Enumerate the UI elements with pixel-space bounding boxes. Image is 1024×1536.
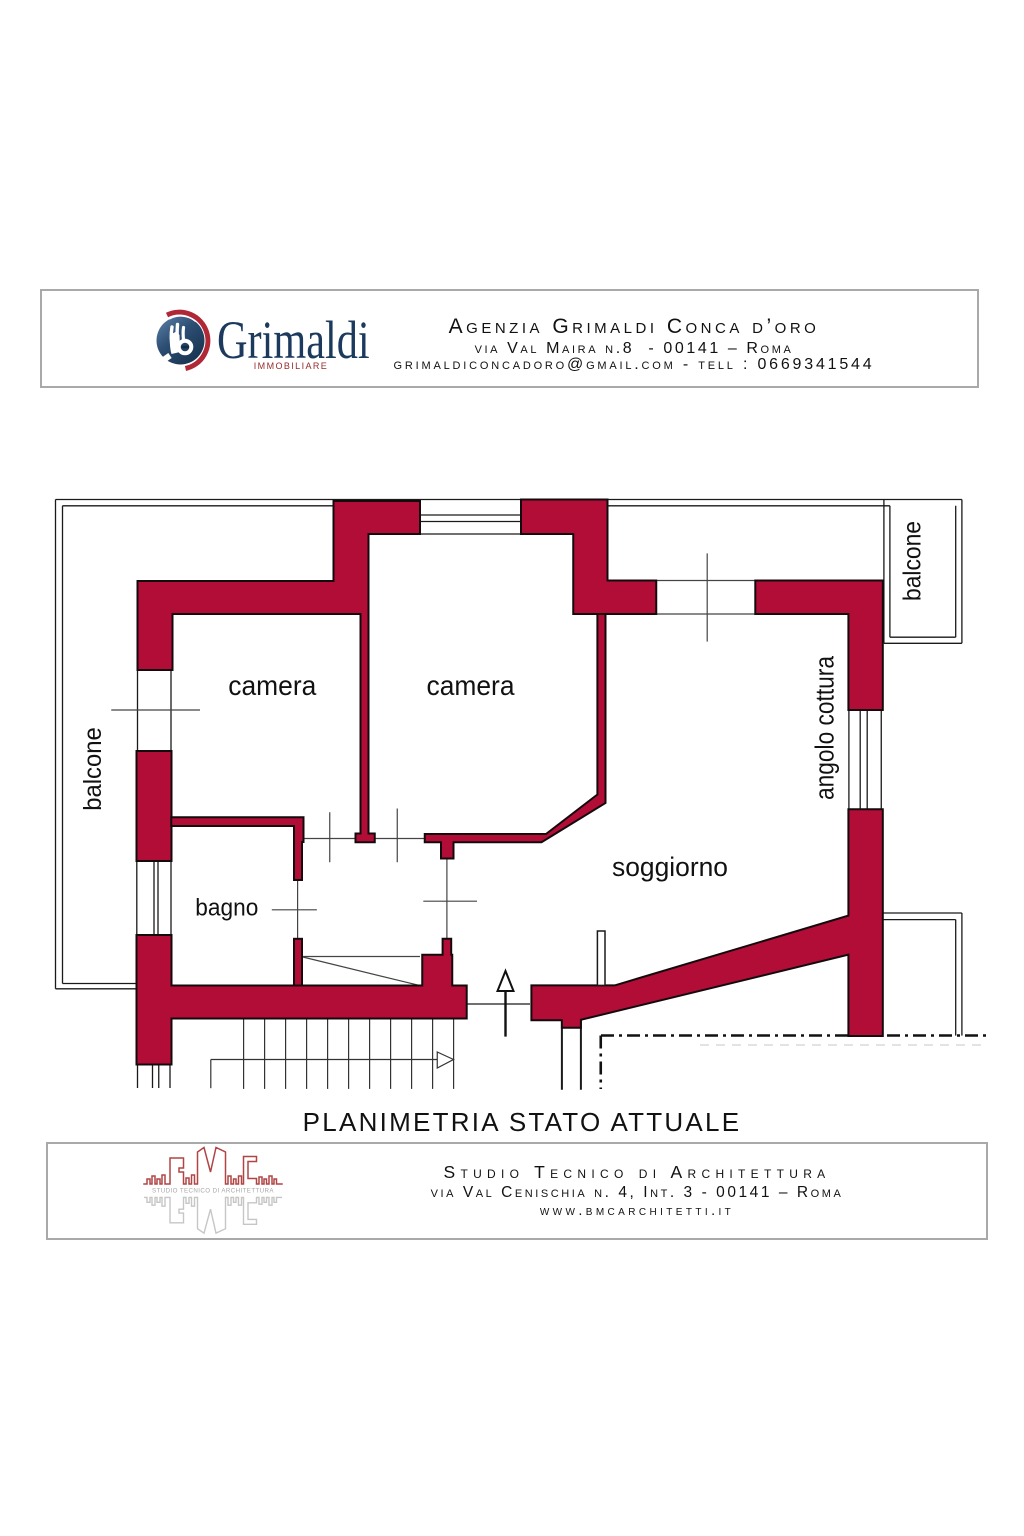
svg-text:STUDIO TECNICO DI ARCHITETTURA: STUDIO TECNICO DI ARCHITETTURA	[152, 1188, 274, 1195]
